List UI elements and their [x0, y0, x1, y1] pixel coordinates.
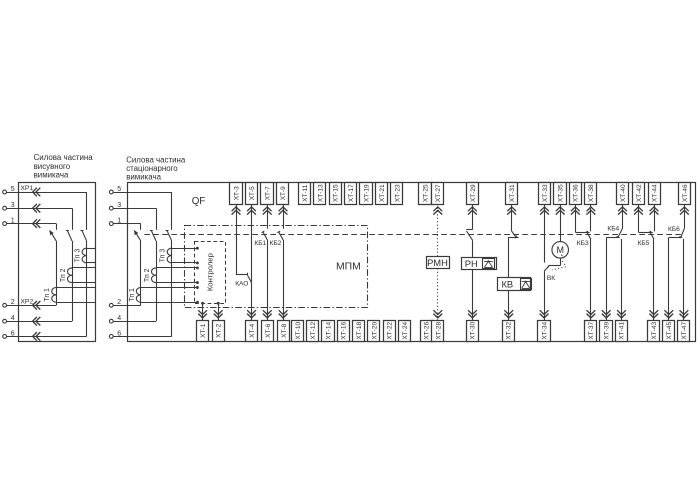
- svg-text:ХТ-29: ХТ-29: [470, 184, 477, 202]
- svg-text:ХТ-21: ХТ-21: [379, 184, 386, 202]
- svg-text:ХТ-18: ХТ-18: [356, 322, 363, 340]
- svg-text:ХТ-46: ХТ-46: [682, 184, 689, 202]
- svg-text:ХТ-11: ХТ-11: [302, 184, 309, 202]
- svg-text:ХТ-8: ХТ-8: [281, 323, 288, 337]
- svg-text:5: 5: [11, 186, 15, 193]
- svg-text:ХТ-4: ХТ-4: [249, 323, 256, 337]
- svg-text:Тп 3: Тп 3: [160, 249, 167, 263]
- svg-text:ХТ-35: ХТ-35: [557, 184, 564, 202]
- svg-text:XP2: XP2: [20, 299, 33, 306]
- svg-text:Тп 2: Тп 2: [144, 268, 151, 282]
- svg-text:вимикача: вимикача: [34, 171, 69, 180]
- svg-text:М: М: [556, 245, 564, 255]
- svg-text:КБ2: КБ2: [270, 240, 282, 247]
- svg-text:ХТ-24: ХТ-24: [402, 322, 409, 340]
- svg-text:ХТ-19: ХТ-19: [363, 184, 370, 202]
- svg-text:ХТ-47: ХТ-47: [681, 322, 688, 340]
- svg-text:ХТ-39: ХТ-39: [603, 322, 610, 340]
- svg-text:КАО: КАО: [235, 281, 248, 288]
- svg-text:Контролер: Контролер: [206, 253, 215, 291]
- svg-text:КБ1: КБ1: [254, 240, 266, 247]
- svg-text:МПМ: МПМ: [336, 262, 361, 273]
- svg-text:ХТ-34: ХТ-34: [541, 322, 548, 340]
- svg-text:Тп 1: Тп 1: [44, 288, 51, 302]
- svg-text:ХТ-40: ХТ-40: [620, 184, 627, 202]
- svg-text:ХТ-22: ХТ-22: [387, 322, 394, 340]
- svg-text:QF: QF: [192, 196, 206, 207]
- svg-text:ХТ-15: ХТ-15: [333, 184, 340, 202]
- svg-text:ХТ-5: ХТ-5: [249, 186, 256, 200]
- svg-text:КБ4: КБ4: [607, 226, 619, 233]
- svg-text:ХТ-20: ХТ-20: [371, 322, 378, 340]
- svg-text:ХТ-9: ХТ-9: [280, 186, 287, 200]
- svg-text:ХТ-43: ХТ-43: [651, 322, 658, 340]
- svg-text:КВ: КВ: [501, 279, 513, 290]
- svg-text:ХТ-23: ХТ-23: [394, 184, 401, 202]
- svg-text:РМН: РМН: [427, 257, 448, 268]
- svg-text:КБ3: КБ3: [577, 240, 589, 247]
- svg-text:КБ5: КБ5: [638, 240, 650, 247]
- svg-text:ХТ-7: ХТ-7: [264, 186, 271, 200]
- svg-text:РН: РН: [465, 258, 478, 269]
- svg-text:ХТ-28: ХТ-28: [435, 322, 442, 340]
- svg-text:ВК: ВК: [547, 275, 555, 282]
- svg-text:XP1: XP1: [20, 185, 33, 192]
- svg-text:ХТ-41: ХТ-41: [619, 322, 626, 340]
- svg-text:ХТ-36: ХТ-36: [573, 184, 580, 202]
- svg-text:ХТ-3: ХТ-3: [233, 186, 240, 200]
- svg-text:висувного: висувного: [34, 162, 71, 171]
- svg-text:ХТ-38: ХТ-38: [588, 184, 595, 202]
- svg-text:ХТ-30: ХТ-30: [470, 322, 477, 340]
- svg-text:5: 5: [117, 186, 121, 193]
- svg-text:ХТ-16: ХТ-16: [341, 322, 348, 340]
- svg-text:ХТ-26: ХТ-26: [424, 322, 431, 340]
- svg-text:ХТ-14: ХТ-14: [325, 322, 332, 340]
- svg-text:ХТ-10: ХТ-10: [295, 322, 302, 340]
- svg-text:ХТ-25: ХТ-25: [422, 184, 429, 202]
- svg-text:ХТ-2: ХТ-2: [216, 323, 223, 337]
- svg-text:ХТ-42: ХТ-42: [636, 184, 643, 202]
- svg-text:Тп 3: Тп 3: [75, 249, 82, 263]
- svg-text:ХТ-32: ХТ-32: [506, 322, 513, 340]
- svg-text:Тп 1: Тп 1: [129, 288, 136, 302]
- svg-text:ХТ-44: ХТ-44: [652, 184, 659, 202]
- svg-text:КБ6: КБ6: [668, 226, 680, 233]
- svg-text:ХТ-1: ХТ-1: [200, 323, 207, 337]
- svg-text:ХТ-45: ХТ-45: [666, 322, 673, 340]
- svg-text:ХТ-37: ХТ-37: [588, 322, 595, 340]
- svg-text:Силова частина: Силова частина: [34, 153, 94, 162]
- svg-text:Тп 2: Тп 2: [60, 268, 67, 282]
- svg-text:ХТ-27: ХТ-27: [435, 184, 442, 202]
- svg-text:ХТ-12: ХТ-12: [310, 322, 317, 340]
- svg-text:ХТ-33: ХТ-33: [542, 184, 549, 202]
- svg-text:вимикача: вимикача: [126, 172, 161, 181]
- svg-text:ХТ-13: ХТ-13: [317, 184, 324, 202]
- svg-text:ХТ-17: ХТ-17: [348, 184, 355, 202]
- svg-text:ХТ-6: ХТ-6: [265, 323, 272, 337]
- svg-text:ХТ-31: ХТ-31: [509, 184, 516, 202]
